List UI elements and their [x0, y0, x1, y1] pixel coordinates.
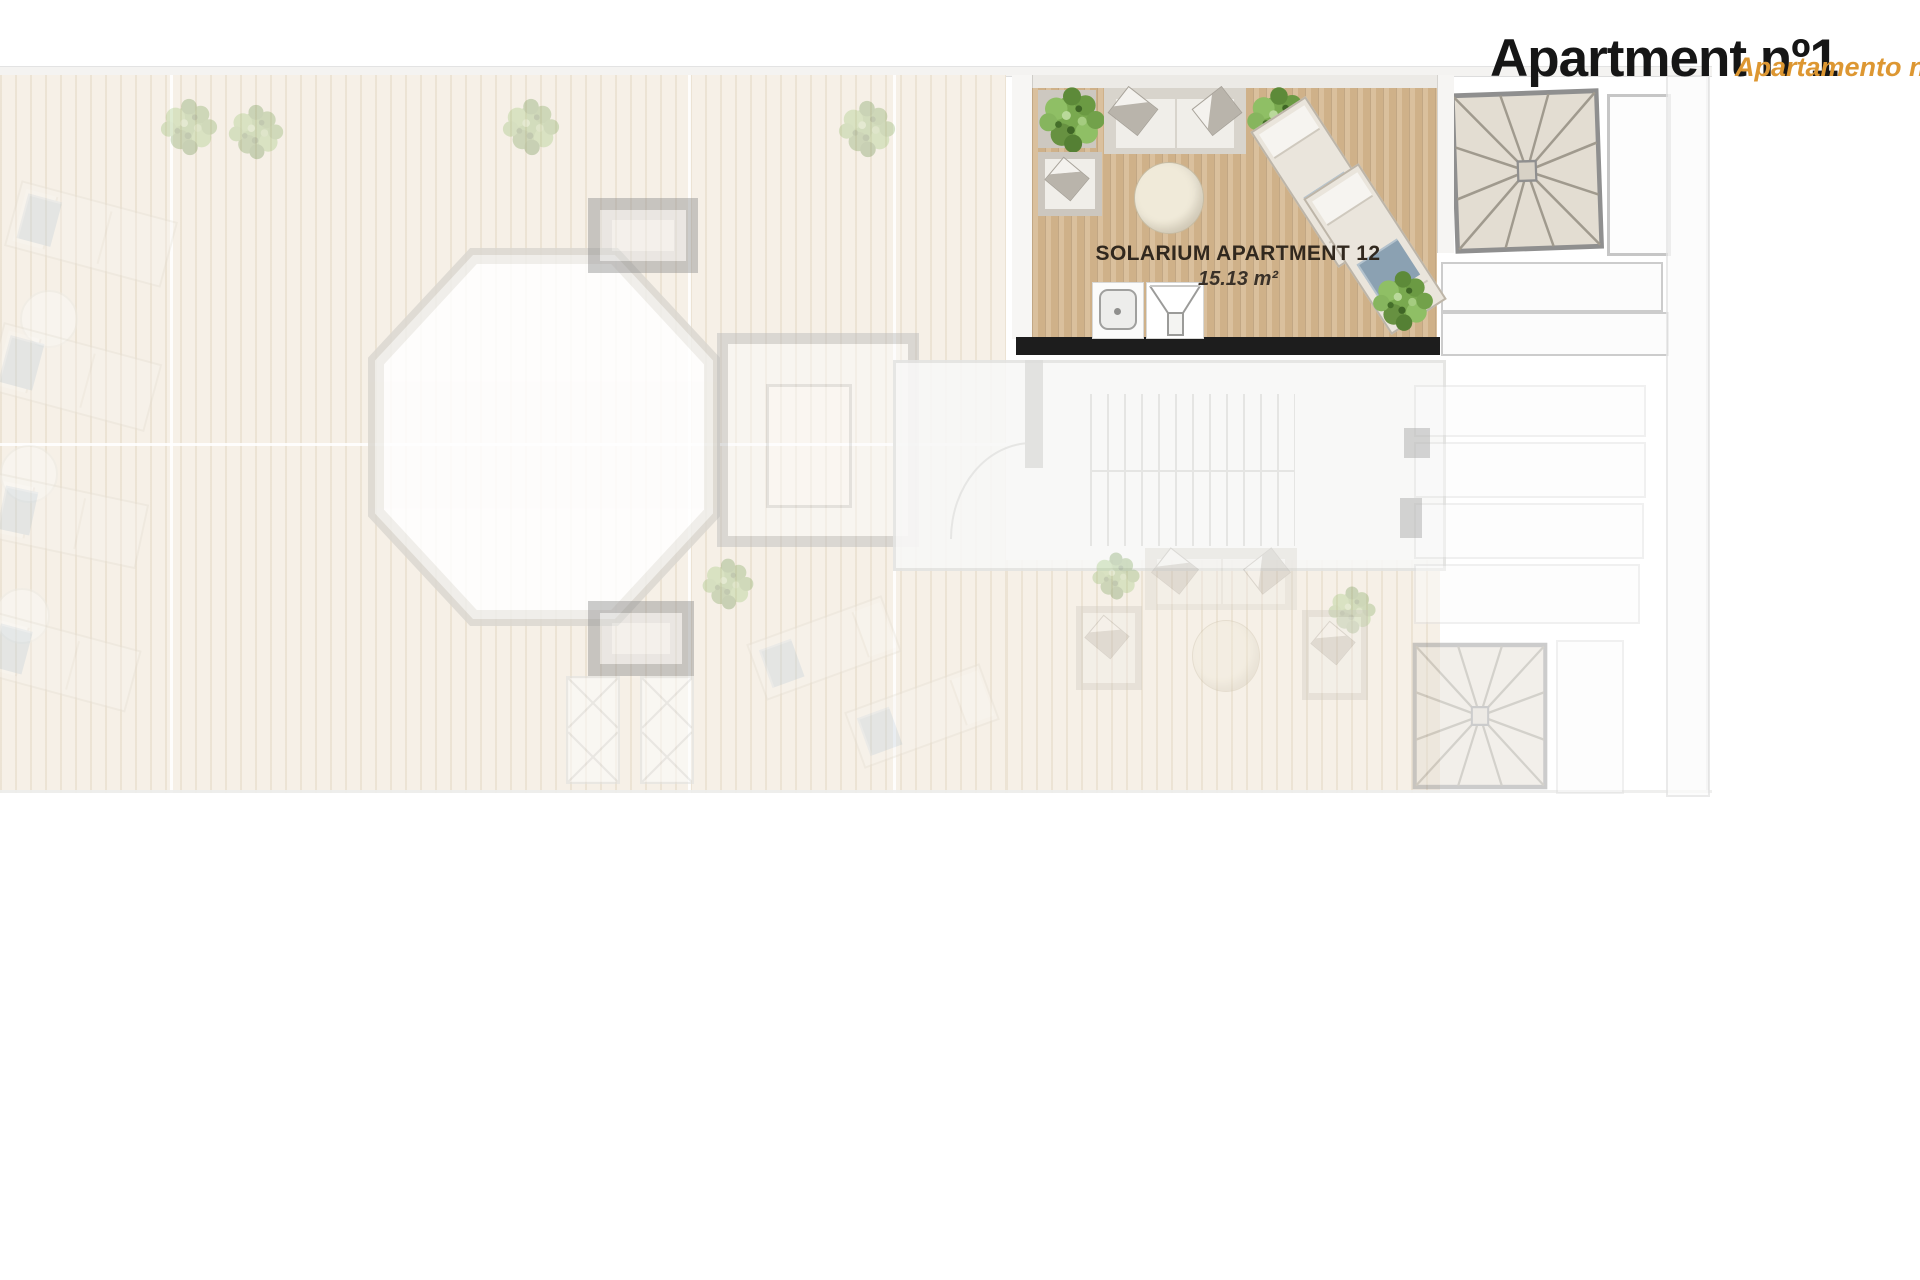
solarium-right-wall [1437, 75, 1454, 253]
solarium-left-wall [1012, 75, 1033, 339]
parasol-table [638, 676, 696, 784]
spiral-staircase [1449, 87, 1605, 254]
plan-bottom-edge [0, 790, 1712, 793]
solarium-area-label: 15.13 m² [1052, 268, 1424, 291]
roof-edge-column [1666, 75, 1710, 797]
parasol-table [566, 676, 620, 784]
plant-icon [700, 556, 756, 612]
roof-strip [1441, 312, 1669, 356]
plant-icon [500, 96, 562, 158]
deck-seam [170, 75, 173, 793]
plant-icon [226, 102, 286, 162]
roof-strip [1441, 262, 1663, 312]
roof-strip [1414, 442, 1646, 498]
plant-icon [1034, 84, 1110, 156]
communal-pool [368, 248, 720, 626]
armchair [1038, 152, 1102, 216]
page-subtitle: Apartamento nº [1735, 52, 1920, 83]
wall-segment [1400, 498, 1422, 538]
armchair [1302, 610, 1368, 700]
floor-plan-page: SOLARIUM APARTMENT 12 15.13 m² Apartment… [0, 0, 1920, 1280]
armchair [1076, 606, 1142, 690]
solarium-label: SOLARIUM APARTMENT 12 [1052, 242, 1424, 266]
plant-icon [158, 96, 220, 158]
round-table [1192, 620, 1260, 692]
roof-strip [1414, 564, 1640, 624]
skylight [588, 198, 698, 273]
roof-panel [1607, 94, 1671, 256]
pool-water [384, 264, 704, 610]
round-table [1134, 162, 1204, 234]
elevator-shaft [766, 384, 852, 508]
sofa [1104, 88, 1246, 154]
skylight [588, 601, 694, 676]
interior-stairs [1090, 394, 1295, 546]
solarium-parapet-wall [1016, 337, 1440, 355]
stair-core [717, 333, 919, 547]
roof-strip [1414, 385, 1646, 437]
sofa [1145, 548, 1297, 610]
spiral-staircase [1412, 642, 1548, 790]
plant-icon [836, 98, 898, 160]
roof-strip [1556, 640, 1624, 794]
wall-segment [1404, 428, 1430, 458]
plant-icon [1090, 550, 1142, 602]
roof-strip [1414, 503, 1644, 559]
